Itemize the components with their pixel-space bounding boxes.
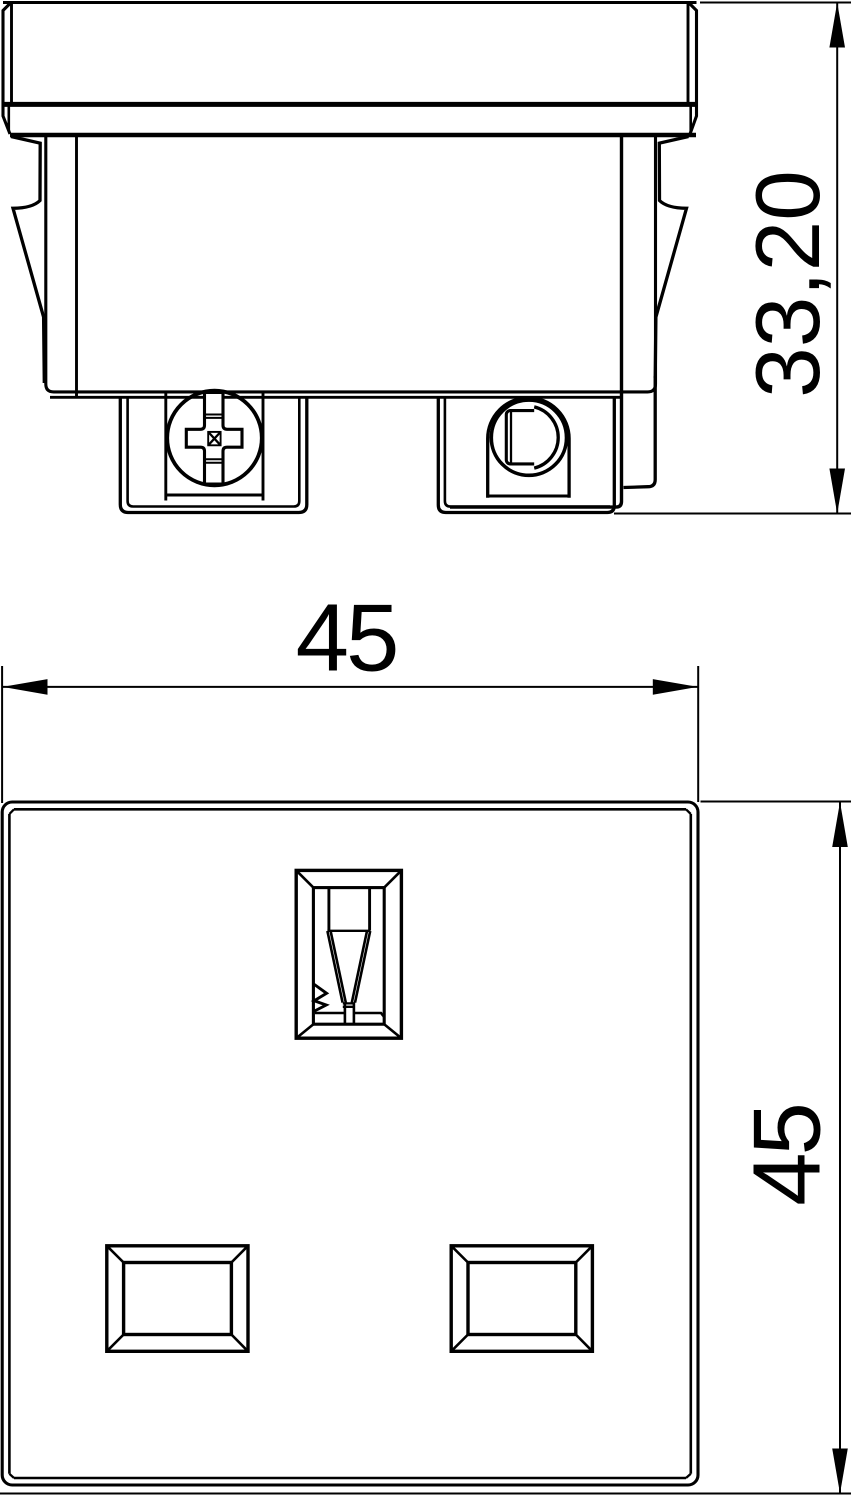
svg-text:45: 45 [296,585,397,692]
svg-text:45: 45 [734,1105,841,1206]
svg-text:33,20: 33,20 [738,170,839,398]
